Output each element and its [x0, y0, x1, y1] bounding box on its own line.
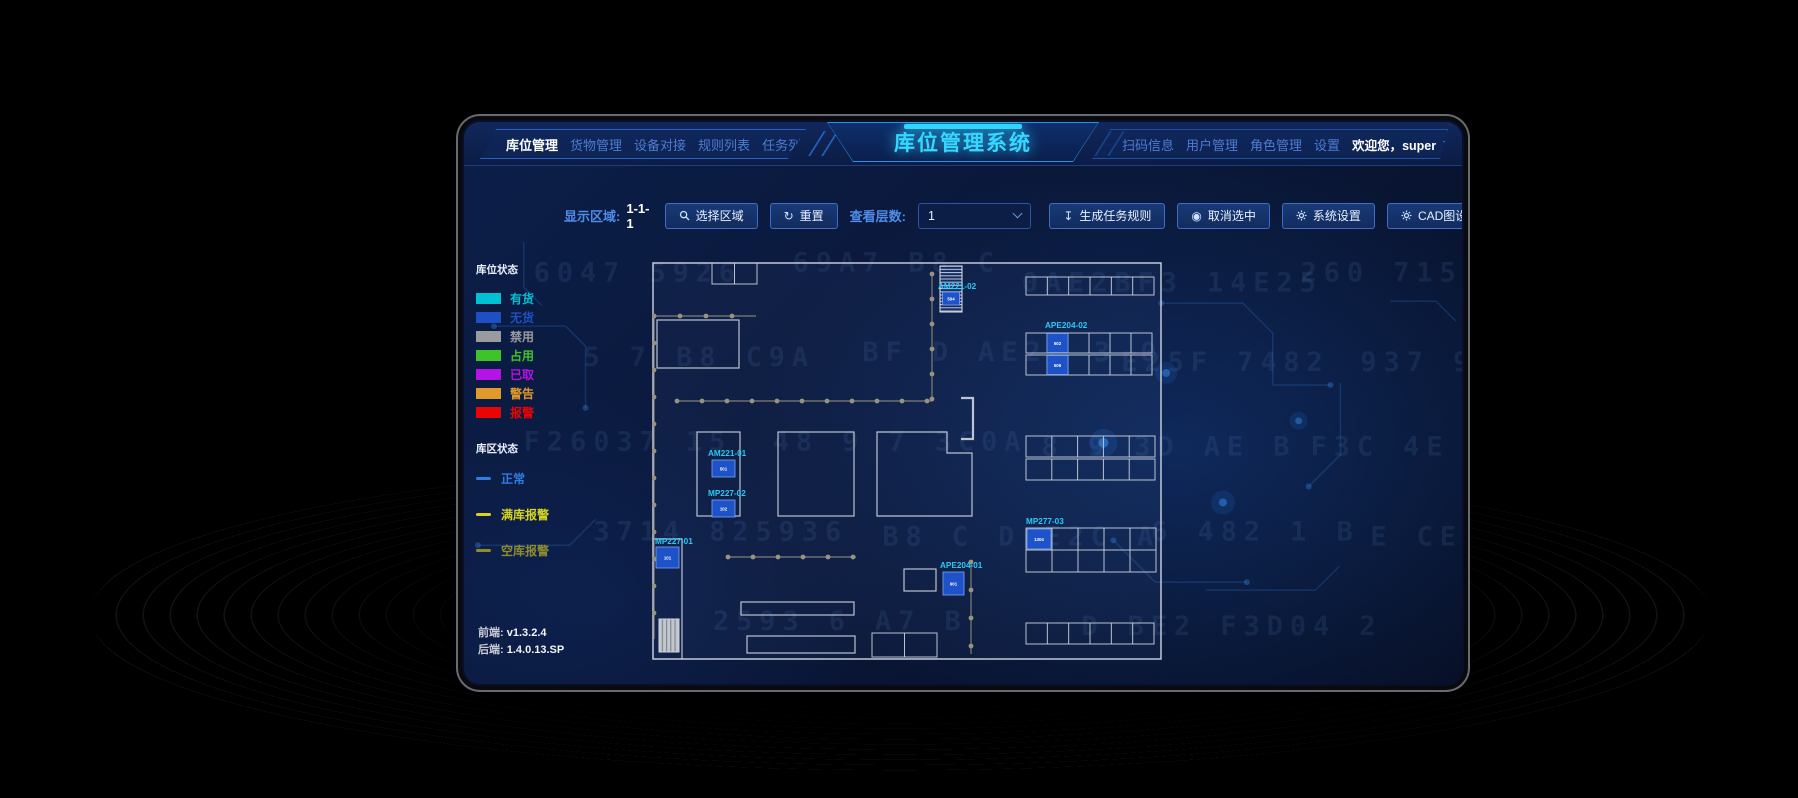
status-color-swatch — [476, 369, 501, 380]
svg-text:504: 504 — [947, 296, 955, 301]
generate-task-rule-button[interactable]: ↧ 生成任务规则 — [1049, 203, 1165, 229]
search-icon — [679, 210, 690, 221]
status-label: 警告 — [510, 385, 534, 402]
svg-text:506: 506 — [1054, 363, 1062, 368]
slot-status-row: 有货 — [476, 293, 596, 304]
status-color-swatch — [476, 312, 501, 323]
zone-status-row: 空库报警 — [476, 542, 596, 559]
slot-status-legend-title: 库位状态 — [476, 262, 596, 277]
status-color-swatch — [476, 407, 501, 418]
svg-text:1304: 1304 — [1034, 537, 1044, 542]
svg-text:F3C 4E 5 38: F3C 4E 5 38 — [1311, 432, 1462, 463]
slot-status-row: 已取 — [476, 369, 596, 380]
svg-text:937 9A7 B8 C: 937 9A7 B8 C — [1360, 347, 1462, 378]
zone-line-swatch — [476, 549, 491, 553]
page-title: 库位管理系统 — [894, 127, 1032, 157]
zone-status-label: 满库报警 — [501, 506, 549, 523]
zone-status-row: 满库报警 — [476, 506, 596, 523]
frontend-version: v1.3.2.4 — [507, 627, 547, 639]
status-label: 已取 — [510, 366, 534, 383]
status-label: 有货 — [510, 290, 534, 307]
zone-line-swatch — [476, 513, 491, 517]
display-area-value: 1-1-1 — [626, 201, 652, 231]
dropdown-caret-icon — [1443, 141, 1453, 147]
svg-text:502: 502 — [1054, 341, 1062, 346]
zone-status-legend: 正常满库报警空库报警 — [476, 470, 596, 559]
cancel-selection-button[interactable]: ◉ 取消选中 — [1177, 203, 1270, 229]
nav-item-settings[interactable]: 设置 — [1314, 135, 1340, 154]
header-bar: 库位管理 货物管理 设备对接 规则列表 任务列表 库位管理系统 — [464, 122, 1462, 166]
nav-item-user-mgmt[interactable]: 用户管理 — [1186, 135, 1238, 154]
legend-panel: 库位状态 有货无货禁用占用已取警告报警 库区状态 正常满库报警空库报警 — [476, 262, 596, 559]
zone-status-legend-title: 库区状态 — [476, 441, 596, 456]
stairs-area — [659, 619, 679, 652]
zone-status-label: 空库报警 — [501, 542, 549, 559]
station-label-mp227-02: MP227-02 — [708, 489, 746, 498]
slot-status-row: 占用 — [476, 350, 596, 361]
svg-text:6 482 1 B: 6 482 1 B — [1151, 516, 1359, 547]
app-screen: 6047 592669A7 B8 C0AE2BF3 14E25260 71593… — [464, 122, 1462, 684]
status-color-swatch — [476, 350, 501, 361]
zone-line-swatch — [476, 477, 491, 481]
zone-status-row: 正常 — [476, 470, 596, 487]
app-window: 6047 592669A7 B8 C0AE2BF3 14E25260 71593… — [458, 116, 1468, 690]
version-info: 前端: v1.3.2.4 后端: 1.4.0.13.SP — [478, 625, 564, 659]
nav-item-device-dock[interactable]: 设备对接 — [634, 135, 686, 154]
floor-level-select[interactable]: 1 — [918, 203, 1031, 229]
slot-status-row: 无货 — [476, 312, 596, 323]
slot-status-row: 警告 — [476, 388, 596, 399]
status-label: 无货 — [510, 309, 534, 326]
station-label-ape204-01: APE204-01 — [940, 561, 983, 570]
svg-text:501: 501 — [720, 467, 728, 472]
status-color-swatch — [476, 331, 501, 342]
status-label: 禁用 — [510, 328, 534, 345]
svg-text:101: 101 — [664, 556, 672, 561]
floor-level-value: 1 — [928, 209, 935, 223]
floorplan-canvas[interactable]: 504 502 506 501 102 101 901 — [652, 261, 1164, 663]
status-color-swatch — [476, 293, 501, 304]
refresh-icon: ↻ — [784, 209, 794, 223]
system-settings-button[interactable]: 系统设置 — [1282, 203, 1375, 229]
nav-item-storage-mgmt[interactable]: 库位管理 — [506, 135, 558, 154]
backend-version: 1.4.0.13.SP — [507, 644, 565, 656]
cad-settings-button[interactable]: CAD图设置 — [1387, 203, 1462, 229]
status-label: 占用 — [510, 347, 534, 364]
title-block: 库位管理系统 — [827, 122, 1099, 162]
nav-item-role-mgmt[interactable]: 角色管理 — [1250, 135, 1302, 154]
floor-level-label: 查看层数: — [850, 206, 906, 225]
station-label-mp227-01: MP227-01 — [655, 537, 693, 546]
record-circle-icon: ◉ — [1191, 209, 1201, 223]
page-background: 6047 592669A7 B8 C0AE2BF3 14E25260 71593… — [0, 0, 1798, 798]
svg-text:102: 102 — [720, 507, 728, 512]
header-slash-decoration — [816, 131, 837, 156]
nav-item-task-list[interactable]: 任务列表 — [762, 135, 814, 154]
station-label-ape204-02: APE204-02 — [1045, 321, 1088, 330]
welcome-text: 欢迎您，super — [1352, 135, 1436, 154]
svg-text:901: 901 — [950, 582, 958, 587]
select-area-button[interactable]: 选择区域 — [665, 203, 758, 229]
nav-item-rule-list[interactable]: 规则列表 — [698, 135, 750, 154]
nav-item-scan-info[interactable]: 扫码信息 — [1122, 135, 1174, 154]
download-icon: ↧ — [1063, 209, 1073, 223]
station-label-am221-01: AM221-01 — [708, 449, 747, 458]
user-menu[interactable]: 欢迎您，super — [1352, 135, 1453, 154]
toolbar: 显示区域: 1-1-1 选择区域 ↻ 重置 查看层数: 1 — [564, 202, 1462, 229]
nav-item-goods-mgmt[interactable]: 货物管理 — [570, 135, 622, 154]
display-area-label: 显示区域: — [564, 206, 620, 225]
status-color-swatch — [476, 388, 501, 399]
floorplan-svg[interactable]: 504 502 506 501 102 101 901 — [652, 261, 1164, 663]
svg-text:E CE 15 37: E CE 15 37 — [1370, 521, 1462, 552]
gear-icon — [1401, 210, 1412, 221]
slot-status-row: 禁用 — [476, 331, 596, 342]
svg-text:260 715936 47: 260 715936 47 — [1301, 257, 1462, 288]
zone-status-label: 正常 — [501, 470, 525, 487]
gear-icon — [1296, 210, 1307, 221]
slot-status-row: 报警 — [476, 407, 596, 418]
station-label-mp277-03: MP277-03 — [1026, 517, 1064, 526]
slot-status-legend: 有货无货禁用占用已取警告报警 — [476, 293, 596, 418]
nav-left-panel: 库位管理 货物管理 设备对接 规则列表 任务列表 — [480, 129, 806, 159]
chevron-down-icon — [1013, 209, 1023, 219]
nav-right-panel: 扫码信息 用户管理 角色管理 设置 欢迎您，super — [1092, 129, 1448, 159]
status-label: 报警 — [510, 404, 534, 421]
station-label-am221-02: AM221-02 — [938, 282, 977, 291]
title-accent-bar — [904, 124, 1022, 129]
reset-button[interactable]: ↻ 重置 — [770, 203, 838, 229]
